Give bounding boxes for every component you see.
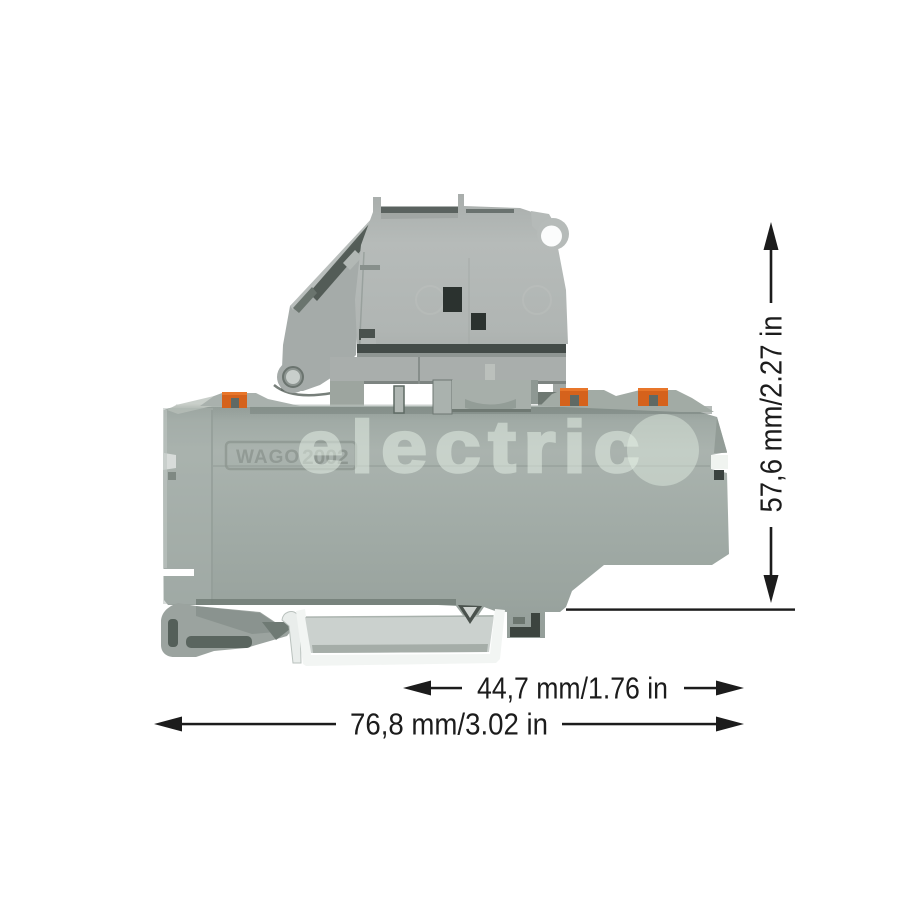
svg-text:76,8 mm/3.02 in: 76,8 mm/3.02 in	[350, 708, 548, 742]
svg-text:electric: electric	[297, 407, 647, 488]
svg-text:57,6 mm/2.27 in: 57,6 mm/2.27 in	[755, 316, 789, 513]
svg-text:44,7 mm/1.76 in: 44,7 mm/1.76 in	[477, 672, 668, 706]
svg-text:WAGO: WAGO	[236, 447, 300, 468]
